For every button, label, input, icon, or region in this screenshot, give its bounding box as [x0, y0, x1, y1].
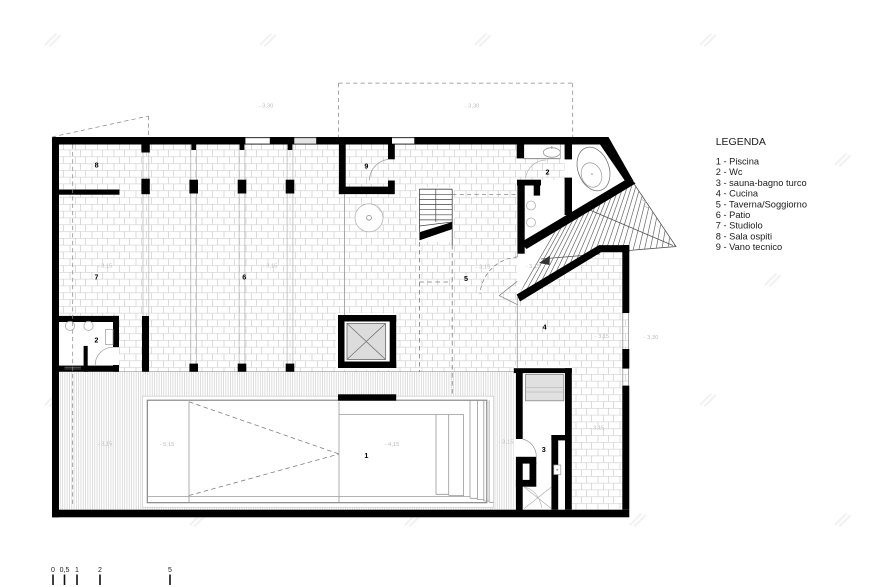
svg-text:2: 2: [94, 336, 98, 345]
svg-text:- 3,15: - 3,15: [499, 440, 514, 446]
svg-text:- 3,30: - 3,30: [465, 104, 480, 110]
svg-text:- 5,15: - 5,15: [160, 442, 175, 448]
svg-text:2 - Wc: 2 - Wc: [716, 167, 743, 177]
svg-text:- 3,30: - 3,30: [259, 104, 274, 110]
svg-text:4 - Cucina: 4 - Cucina: [716, 189, 759, 199]
svg-text:6 - Patio: 6 - Patio: [716, 210, 751, 220]
svg-text:- 3,15: - 3,15: [98, 442, 113, 448]
svg-text:- 3,15: - 3,15: [263, 264, 278, 270]
svg-text:- 3,15: - 3,15: [476, 265, 491, 271]
svg-text:3 - sauna-bagno turco: 3 - sauna-bagno turco: [716, 178, 807, 188]
svg-text:5: 5: [464, 274, 468, 283]
svg-text:- 3,15: - 3,15: [526, 264, 541, 270]
svg-text:4: 4: [543, 323, 547, 332]
svg-text:0: 0: [51, 567, 55, 574]
svg-text:1: 1: [75, 567, 79, 574]
svg-text:9 - Vano tecnico: 9 - Vano tecnico: [716, 242, 783, 252]
svg-text:3: 3: [542, 445, 546, 454]
svg-text:9: 9: [364, 162, 368, 171]
svg-text:- 3,15: - 3,15: [595, 334, 610, 340]
svg-text:1: 1: [364, 451, 368, 460]
svg-text:5 - Taverna/Soggiorno: 5 - Taverna/Soggiorno: [716, 199, 807, 209]
svg-text:- 4,15: - 4,15: [385, 442, 400, 448]
svg-text:- 3,15: - 3,15: [98, 264, 113, 270]
svg-text:7: 7: [95, 273, 99, 282]
svg-text:2: 2: [98, 567, 102, 574]
svg-text:8: 8: [95, 161, 99, 170]
svg-text:1 - Piscina: 1 - Piscina: [716, 157, 760, 167]
svg-text:- 3,30: - 3,30: [644, 335, 659, 341]
svg-text:5: 5: [168, 567, 172, 574]
svg-text:6: 6: [242, 273, 246, 282]
svg-text:2: 2: [546, 168, 550, 177]
svg-text:- 3,15: - 3,15: [590, 426, 605, 432]
svg-text:0,5: 0,5: [60, 567, 70, 574]
svg-text:LEGENDA: LEGENDA: [716, 136, 766, 148]
svg-text:7 - Studiolo: 7 - Studiolo: [716, 221, 763, 231]
svg-text:8 - Sala ospiti: 8 - Sala ospiti: [716, 231, 772, 241]
